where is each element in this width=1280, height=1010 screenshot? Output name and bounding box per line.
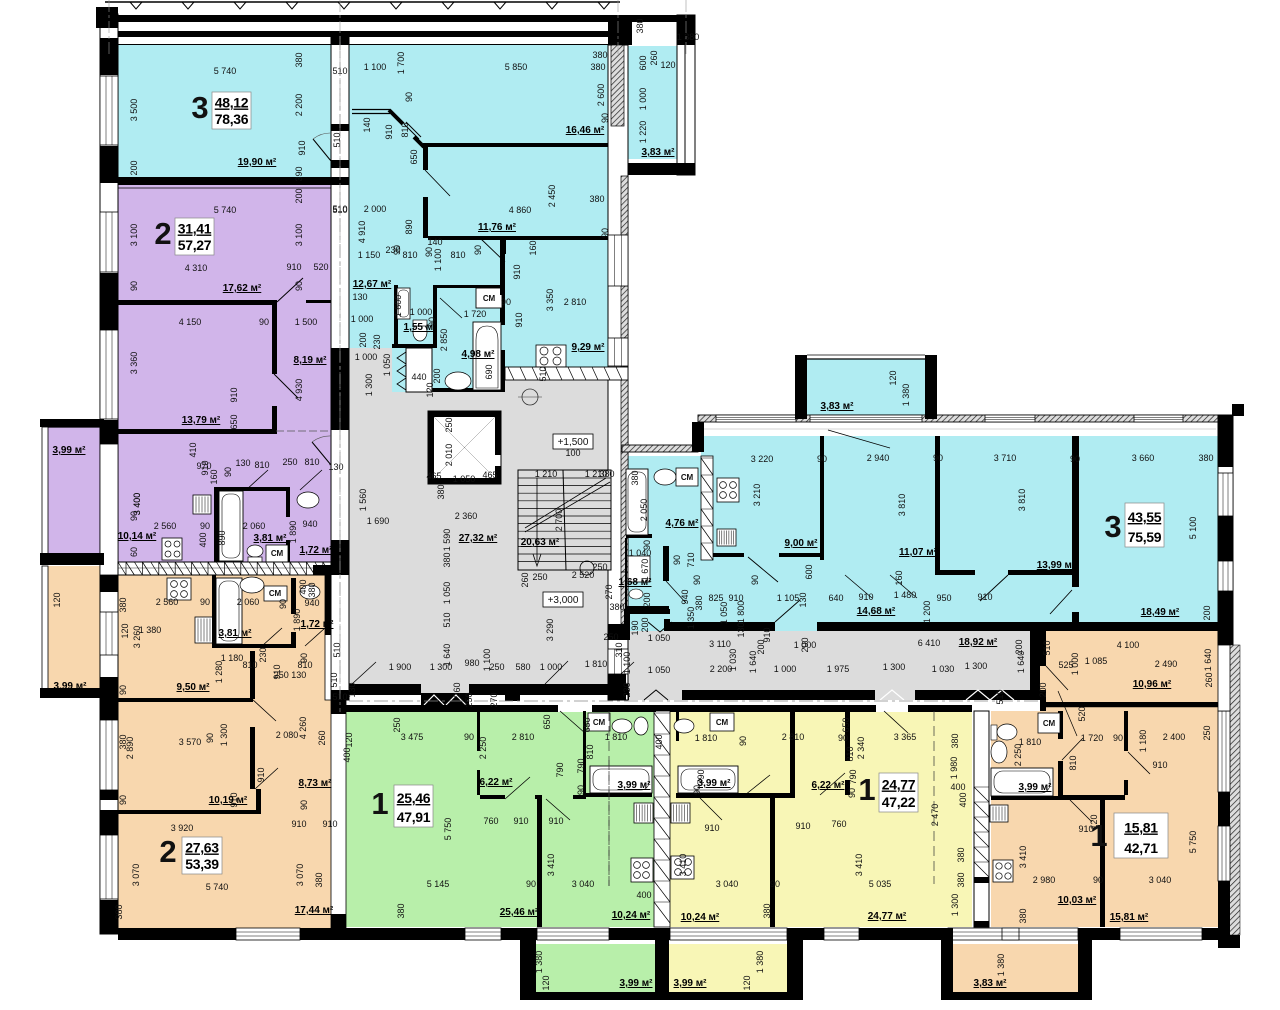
svg-text:465: 465: [426, 471, 441, 481]
svg-text:90: 90: [576, 785, 586, 795]
svg-text:1 280: 1 280: [214, 661, 224, 684]
svg-text:260: 260: [520, 572, 530, 587]
svg-text:СМ: СМ: [1043, 719, 1056, 728]
svg-text:3,99 м²: 3,99 м²: [618, 780, 652, 791]
svg-text:910: 910: [1152, 760, 1167, 770]
svg-text:160: 160: [528, 240, 538, 255]
svg-text:400: 400: [654, 734, 664, 749]
svg-text:3 810: 3 810: [897, 494, 907, 517]
svg-text:1 890: 1 890: [288, 521, 298, 544]
svg-text:120: 120: [888, 370, 898, 385]
svg-text:1 000: 1 000: [638, 88, 648, 111]
svg-text:940: 940: [680, 589, 690, 604]
svg-text:3 040: 3 040: [1149, 875, 1172, 885]
svg-text:2 250: 2 250: [1013, 744, 1023, 767]
svg-text:90: 90: [770, 879, 780, 889]
svg-text:400: 400: [342, 747, 352, 762]
svg-text:410: 410: [188, 442, 198, 457]
svg-text:380: 380: [630, 470, 640, 485]
svg-text:2 060: 2 060: [243, 521, 266, 531]
svg-text:6,22 м²: 6,22 м²: [480, 777, 514, 788]
svg-text:2 400: 2 400: [1163, 732, 1186, 742]
svg-text:250: 250: [444, 417, 454, 432]
svg-text:1 500: 1 500: [295, 317, 318, 327]
svg-text:3,99 м²: 3,99 м²: [620, 978, 654, 989]
svg-text:270: 270: [604, 584, 614, 599]
svg-text:120: 120: [541, 975, 551, 990]
svg-text:2 560: 2 560: [156, 597, 179, 607]
svg-text:5 740: 5 740: [206, 882, 229, 892]
svg-text:2 490: 2 490: [1155, 659, 1178, 669]
svg-text:510: 510: [332, 132, 342, 147]
svg-text:СМ: СМ: [593, 718, 606, 727]
svg-text:3: 3: [1104, 509, 1121, 544]
svg-text:380: 380: [294, 52, 304, 67]
svg-text:17,62 м²: 17,62 м²: [223, 283, 262, 294]
svg-text:1 300: 1 300: [965, 661, 988, 671]
svg-text:890: 890: [404, 219, 414, 234]
svg-text:200: 200: [1202, 605, 1212, 620]
svg-text:1 560: 1 560: [358, 489, 368, 512]
svg-text:2 250: 2 250: [478, 737, 488, 760]
svg-text:650: 650: [542, 714, 552, 729]
svg-text:810: 810: [402, 250, 417, 260]
svg-text:90: 90: [933, 453, 943, 463]
svg-text:3,99 м²: 3,99 м²: [54, 681, 88, 692]
svg-text:1 980: 1 980: [949, 757, 959, 780]
svg-text:3 220: 3 220: [751, 454, 774, 464]
svg-text:3 410: 3 410: [678, 854, 688, 877]
svg-text:140: 140: [427, 237, 442, 247]
svg-text:810: 810: [845, 746, 855, 761]
svg-text:910: 910: [256, 767, 266, 782]
svg-text:3 500: 3 500: [129, 99, 139, 122]
svg-text:90: 90: [118, 685, 128, 695]
svg-text:440: 440: [411, 372, 426, 382]
svg-text:130: 130: [798, 592, 808, 607]
svg-text:400: 400: [198, 532, 208, 547]
svg-text:90: 90: [259, 317, 269, 327]
svg-text:910: 910: [704, 823, 719, 833]
svg-text:260: 260: [317, 730, 327, 745]
svg-text:510: 510: [442, 612, 452, 627]
svg-text:310: 310: [614, 642, 624, 657]
svg-text:90: 90: [118, 795, 128, 805]
svg-text:5 145: 5 145: [427, 879, 450, 889]
svg-text:380: 380: [950, 733, 960, 748]
svg-text:3,81 м²: 3,81 м²: [254, 533, 288, 544]
svg-text:4,98 м²: 4,98 м²: [462, 349, 496, 360]
svg-text:3 570: 3 570: [179, 737, 202, 747]
svg-text:510: 510: [1042, 640, 1052, 655]
svg-text:950: 950: [936, 593, 951, 603]
svg-text:3 660: 3 660: [1132, 453, 1155, 463]
svg-text:120: 120: [660, 60, 675, 70]
svg-text:1,72 м²: 1,72 м²: [300, 545, 334, 556]
svg-text:90: 90: [223, 467, 233, 477]
svg-text:2 890: 2 890: [125, 737, 135, 760]
svg-text:1 000: 1 000: [355, 352, 378, 362]
svg-text:380: 380: [762, 903, 772, 918]
svg-text:90: 90: [672, 555, 682, 565]
svg-text:1 590: 1 590: [442, 529, 452, 552]
svg-text:940: 940: [304, 598, 319, 608]
svg-text:5 100: 5 100: [1188, 517, 1198, 540]
svg-text:380: 380: [956, 847, 966, 862]
svg-text:510: 510: [329, 672, 339, 687]
svg-text:1: 1: [858, 772, 875, 807]
svg-text:200: 200: [800, 637, 810, 652]
svg-text:3 810: 3 810: [1017, 489, 1027, 512]
svg-text:160: 160: [894, 570, 904, 585]
svg-text:15,81: 15,81: [1124, 820, 1158, 836]
svg-text:90: 90: [1113, 733, 1123, 743]
svg-text:13,99 м²: 13,99 м²: [1037, 560, 1076, 571]
svg-text:2 600: 2 600: [596, 84, 606, 107]
svg-text:СМ: СМ: [271, 549, 284, 558]
svg-text:260: 260: [452, 682, 462, 697]
svg-text:510: 510: [995, 689, 1005, 704]
svg-text:940: 940: [302, 519, 317, 529]
svg-text:1 100: 1 100: [433, 249, 443, 272]
svg-text:3 110: 3 110: [709, 639, 731, 649]
svg-text:13,79 м²: 13,79 м²: [182, 415, 221, 426]
svg-text:1 180: 1 180: [1138, 730, 1148, 753]
svg-text:2 520: 2 520: [572, 570, 595, 580]
svg-text:810: 810: [242, 660, 257, 670]
svg-text:910: 910: [322, 819, 337, 829]
svg-text:3 410: 3 410: [854, 854, 864, 877]
svg-text:2: 2: [154, 216, 171, 251]
svg-text:380: 380: [609, 602, 624, 612]
svg-text:90: 90: [847, 788, 857, 798]
svg-text:4 310: 4 310: [185, 263, 208, 273]
svg-text:5 750: 5 750: [443, 818, 453, 841]
svg-text:380: 380: [635, 18, 645, 33]
svg-text:380: 380: [1018, 908, 1028, 923]
svg-text:1 975: 1 975: [827, 664, 850, 674]
svg-text:47,91: 47,91: [397, 809, 431, 825]
svg-text:810: 810: [1068, 755, 1078, 770]
svg-text:270: 270: [489, 692, 499, 707]
svg-text:2 000: 2 000: [364, 204, 387, 214]
svg-text:2 360: 2 360: [455, 511, 478, 521]
svg-text:200: 200: [129, 160, 139, 175]
svg-text:690: 690: [484, 364, 494, 379]
svg-text:48,12: 48,12: [215, 95, 249, 111]
svg-text:1 050: 1 050: [382, 354, 392, 377]
svg-text:790: 790: [848, 769, 858, 784]
svg-text:2 810: 2 810: [564, 297, 587, 307]
svg-text:2 940: 2 940: [867, 453, 890, 463]
svg-text:6,22 м²: 6,22 м²: [812, 780, 846, 791]
svg-text:1 050: 1 050: [648, 633, 671, 643]
svg-text:710: 710: [686, 552, 696, 567]
svg-text:11,76 м²: 11,76 м²: [478, 222, 517, 233]
svg-text:2 450: 2 450: [547, 185, 557, 208]
svg-text:250: 250: [464, 692, 474, 707]
svg-text:3 710: 3 710: [994, 453, 1017, 463]
svg-text:24,77: 24,77: [882, 777, 916, 793]
svg-text:1 300: 1 300: [883, 662, 906, 672]
svg-text:230: 230: [258, 647, 268, 662]
svg-text:380: 380: [396, 903, 406, 918]
svg-text:910: 910: [297, 140, 307, 155]
svg-text:3 410: 3 410: [546, 854, 556, 877]
svg-text:760: 760: [831, 819, 846, 829]
svg-text:1,68 м²: 1,68 м²: [619, 577, 653, 588]
svg-text:1 720: 1 720: [1081, 733, 1104, 743]
svg-text:42,71: 42,71: [1124, 840, 1158, 856]
svg-text:1,55 м²: 1,55 м²: [404, 322, 438, 333]
svg-text:90: 90: [501, 297, 511, 307]
svg-text:9,50: 9,50: [0, 0, 9, 2]
svg-text:380: 380: [314, 872, 324, 887]
svg-text:3 410: 3 410: [1018, 846, 1028, 869]
svg-text:910: 910: [977, 592, 992, 602]
svg-text:400: 400: [950, 782, 965, 792]
svg-text:120: 120: [344, 732, 354, 747]
svg-text:27,63: 27,63: [185, 840, 219, 856]
svg-text:4 150: 4 150: [179, 317, 202, 327]
svg-text:2 980: 2 980: [1033, 875, 1056, 885]
svg-text:4 910: 4 910: [357, 221, 367, 244]
svg-text:2: 2: [159, 834, 176, 869]
svg-text:380: 380: [114, 904, 124, 919]
svg-text:380: 380: [436, 484, 446, 499]
svg-text:3 920: 3 920: [171, 823, 194, 833]
svg-text:1 050: 1 050: [453, 474, 476, 484]
svg-text:5 740: 5 740: [214, 66, 237, 76]
svg-text:640: 640: [828, 593, 843, 603]
svg-text:260: 260: [649, 50, 659, 65]
svg-text:400: 400: [636, 890, 651, 900]
svg-text:980: 980: [464, 658, 479, 668]
svg-text:250: 250: [603, 632, 618, 642]
svg-text:17,44 м²: 17,44 м²: [295, 905, 334, 916]
svg-text:9,29 м²: 9,29 м²: [572, 342, 606, 353]
svg-text:1 600: 1 600: [393, 295, 403, 318]
svg-text:СМ: СМ: [681, 473, 694, 482]
svg-text:90: 90: [838, 733, 848, 743]
svg-text:1 000: 1 000: [774, 664, 797, 674]
svg-text:10,03 м²: 10,03 м²: [1058, 895, 1097, 906]
svg-text:250: 250: [532, 572, 547, 582]
svg-text:1 000: 1 000: [351, 314, 374, 324]
svg-text:10,96 м²: 10,96 м²: [1133, 679, 1172, 690]
svg-text:200: 200: [432, 368, 442, 383]
svg-text:230: 230: [622, 682, 632, 697]
svg-text:1 180: 1 180: [221, 653, 244, 663]
svg-text:78,36: 78,36: [215, 111, 249, 127]
svg-text:810: 810: [585, 744, 595, 759]
svg-text:1 000: 1 000: [410, 307, 433, 317]
svg-text:1 300: 1 300: [950, 894, 960, 917]
svg-text:400: 400: [958, 792, 968, 807]
svg-text:12,67 м²: 12,67 м²: [353, 279, 392, 290]
svg-text:18,92 м²: 18,92 м²: [959, 637, 998, 648]
svg-text:4,76 м²: 4,76 м²: [666, 518, 700, 529]
svg-text:3 100: 3 100: [129, 224, 139, 247]
svg-text:1 300: 1 300: [219, 724, 229, 747]
svg-text:3,99 м²: 3,99 м²: [53, 445, 87, 456]
svg-text:910: 910: [384, 124, 394, 139]
svg-text:1 640: 1 640: [1203, 649, 1213, 672]
svg-text:120: 120: [425, 382, 435, 397]
svg-text:СМ: СМ: [483, 294, 496, 303]
svg-text:90: 90: [600, 113, 610, 123]
svg-text:57,27: 57,27: [178, 237, 212, 253]
svg-text:600: 600: [638, 55, 648, 70]
svg-text:3 210: 3 210: [752, 484, 762, 507]
svg-text:8,19 м²: 8,19 м²: [294, 355, 328, 366]
svg-text:15,81 м²: 15,81 м²: [1110, 912, 1149, 923]
svg-text:910: 910: [291, 819, 306, 829]
svg-text:380: 380: [307, 582, 317, 597]
svg-text:3,81 м²: 3,81 м²: [219, 628, 253, 639]
svg-text:390: 390: [294, 166, 304, 181]
svg-text:520: 520: [1077, 706, 1087, 721]
svg-text:200: 200: [358, 332, 368, 347]
svg-text:2 560: 2 560: [154, 521, 177, 531]
svg-text:1 220: 1 220: [638, 121, 648, 144]
svg-text:3 350: 3 350: [545, 289, 555, 312]
svg-text:650: 650: [409, 149, 419, 164]
svg-text:130: 130: [347, 682, 357, 697]
svg-text:1 150: 1 150: [358, 250, 381, 260]
svg-text:+1,500: +1,500: [558, 437, 589, 448]
svg-text:190: 190: [630, 620, 640, 635]
svg-text:1 800: 1 800: [736, 601, 746, 624]
svg-text:130: 130: [235, 458, 250, 468]
svg-text:2 200: 2 200: [710, 664, 733, 674]
svg-text:3 360: 3 360: [129, 352, 139, 375]
svg-text:90: 90: [129, 281, 139, 291]
svg-text:910: 910: [548, 816, 563, 826]
svg-text:1 380: 1 380: [901, 384, 911, 407]
svg-text:1 640: 1 640: [1016, 651, 1026, 674]
svg-text:2 470: 2 470: [930, 804, 940, 827]
svg-text:140: 140: [362, 117, 372, 132]
svg-text:90: 90: [738, 736, 748, 746]
svg-text:27,32 м²: 27,32 м²: [459, 533, 498, 544]
svg-text:10,24 м²: 10,24 м²: [681, 912, 720, 923]
svg-text:2 850: 2 850: [439, 329, 449, 352]
svg-text:380: 380: [442, 552, 452, 567]
svg-text:250: 250: [282, 457, 297, 467]
svg-text:650: 650: [582, 717, 592, 732]
svg-text:3 040: 3 040: [716, 879, 739, 889]
svg-text:1 000: 1 000: [1070, 653, 1080, 676]
svg-text:1 900: 1 900: [389, 662, 412, 672]
svg-text:2 700: 2 700: [554, 509, 564, 532]
svg-text:10,19 м²: 10,19 м²: [209, 795, 248, 806]
svg-text:1 380: 1 380: [996, 954, 1006, 977]
svg-text:90: 90: [464, 732, 474, 742]
svg-text:465: 465: [482, 470, 497, 480]
svg-text:910: 910: [514, 312, 524, 327]
svg-text:1 300: 1 300: [430, 662, 453, 672]
svg-text:90: 90: [1093, 875, 1103, 885]
svg-text:1 085: 1 085: [1085, 656, 1108, 666]
svg-text:120: 120: [742, 975, 752, 990]
svg-text:650: 650: [841, 717, 851, 732]
svg-text:5 750: 5 750: [1188, 831, 1198, 854]
svg-text:1 720: 1 720: [464, 309, 487, 319]
svg-text:1 050: 1 050: [719, 602, 729, 625]
svg-text:650: 650: [229, 414, 239, 429]
svg-text:3 475: 3 475: [401, 732, 424, 742]
svg-text:1 210: 1 210: [585, 469, 608, 479]
svg-text:250: 250: [592, 562, 607, 572]
svg-text:790: 790: [555, 762, 565, 777]
svg-text:90: 90: [200, 521, 210, 531]
svg-text:90: 90: [692, 575, 702, 585]
svg-text:2 010: 2 010: [444, 444, 454, 467]
svg-text:90: 90: [600, 228, 610, 238]
svg-text:1 100: 1 100: [482, 649, 492, 672]
svg-text:5 740: 5 740: [214, 205, 237, 215]
svg-text:1 030: 1 030: [932, 664, 955, 674]
svg-text:20,63 м²: 20,63 м²: [521, 537, 560, 548]
svg-text:120: 120: [120, 623, 130, 638]
svg-text:3,83 м²: 3,83 м²: [642, 147, 676, 158]
svg-text:200: 200: [1038, 682, 1048, 697]
svg-text:380: 380: [590, 62, 605, 72]
svg-text:1 000: 1 000: [540, 662, 563, 672]
svg-text:910: 910: [513, 816, 528, 826]
svg-text:2 810: 2 810: [512, 732, 535, 742]
svg-text:47,22: 47,22: [882, 794, 916, 810]
svg-text:520: 520: [313, 262, 328, 272]
svg-text:4 100: 4 100: [1117, 640, 1140, 650]
svg-text:130: 130: [736, 622, 746, 637]
svg-text:825: 825: [708, 593, 723, 603]
svg-text:160: 160: [209, 469, 219, 484]
svg-text:6 410: 6 410: [918, 638, 941, 648]
svg-text:10,14 м²: 10,14 м²: [118, 531, 157, 542]
svg-text:760: 760: [483, 816, 498, 826]
svg-text:43,55: 43,55: [1128, 509, 1162, 525]
svg-text:380: 380: [589, 194, 604, 204]
svg-text:11,07 м²: 11,07 м²: [899, 547, 938, 558]
svg-text:90: 90: [205, 733, 215, 743]
svg-text:31,41: 31,41: [178, 221, 212, 237]
svg-text:90: 90: [294, 281, 304, 291]
svg-text:910: 910: [858, 592, 873, 602]
svg-text:90: 90: [299, 800, 309, 810]
svg-text:3 100: 3 100: [294, 224, 304, 247]
svg-text:10,24 м²: 10,24 м²: [612, 910, 651, 921]
svg-text:810: 810: [450, 250, 465, 260]
svg-text:3 040: 3 040: [572, 879, 595, 889]
svg-text:8,73 м²: 8,73 м²: [299, 778, 333, 789]
svg-text:2 050: 2 050: [639, 499, 649, 522]
svg-text:200: 200: [294, 188, 304, 203]
svg-text:510: 510: [538, 366, 548, 381]
svg-text:9,50 м²: 9,50 м²: [177, 682, 211, 693]
svg-text:1 380: 1 380: [755, 951, 765, 974]
svg-text:230: 230: [372, 334, 382, 349]
svg-text:910: 910: [229, 387, 239, 402]
svg-text:4 860: 4 860: [509, 205, 532, 215]
svg-text:5 850: 5 850: [505, 62, 528, 72]
svg-text:1 700: 1 700: [396, 52, 406, 75]
svg-text:910: 910: [286, 262, 301, 272]
svg-text:120: 120: [52, 592, 62, 607]
svg-text:1 640: 1 640: [748, 651, 758, 674]
svg-text:1 050: 1 050: [442, 582, 452, 605]
